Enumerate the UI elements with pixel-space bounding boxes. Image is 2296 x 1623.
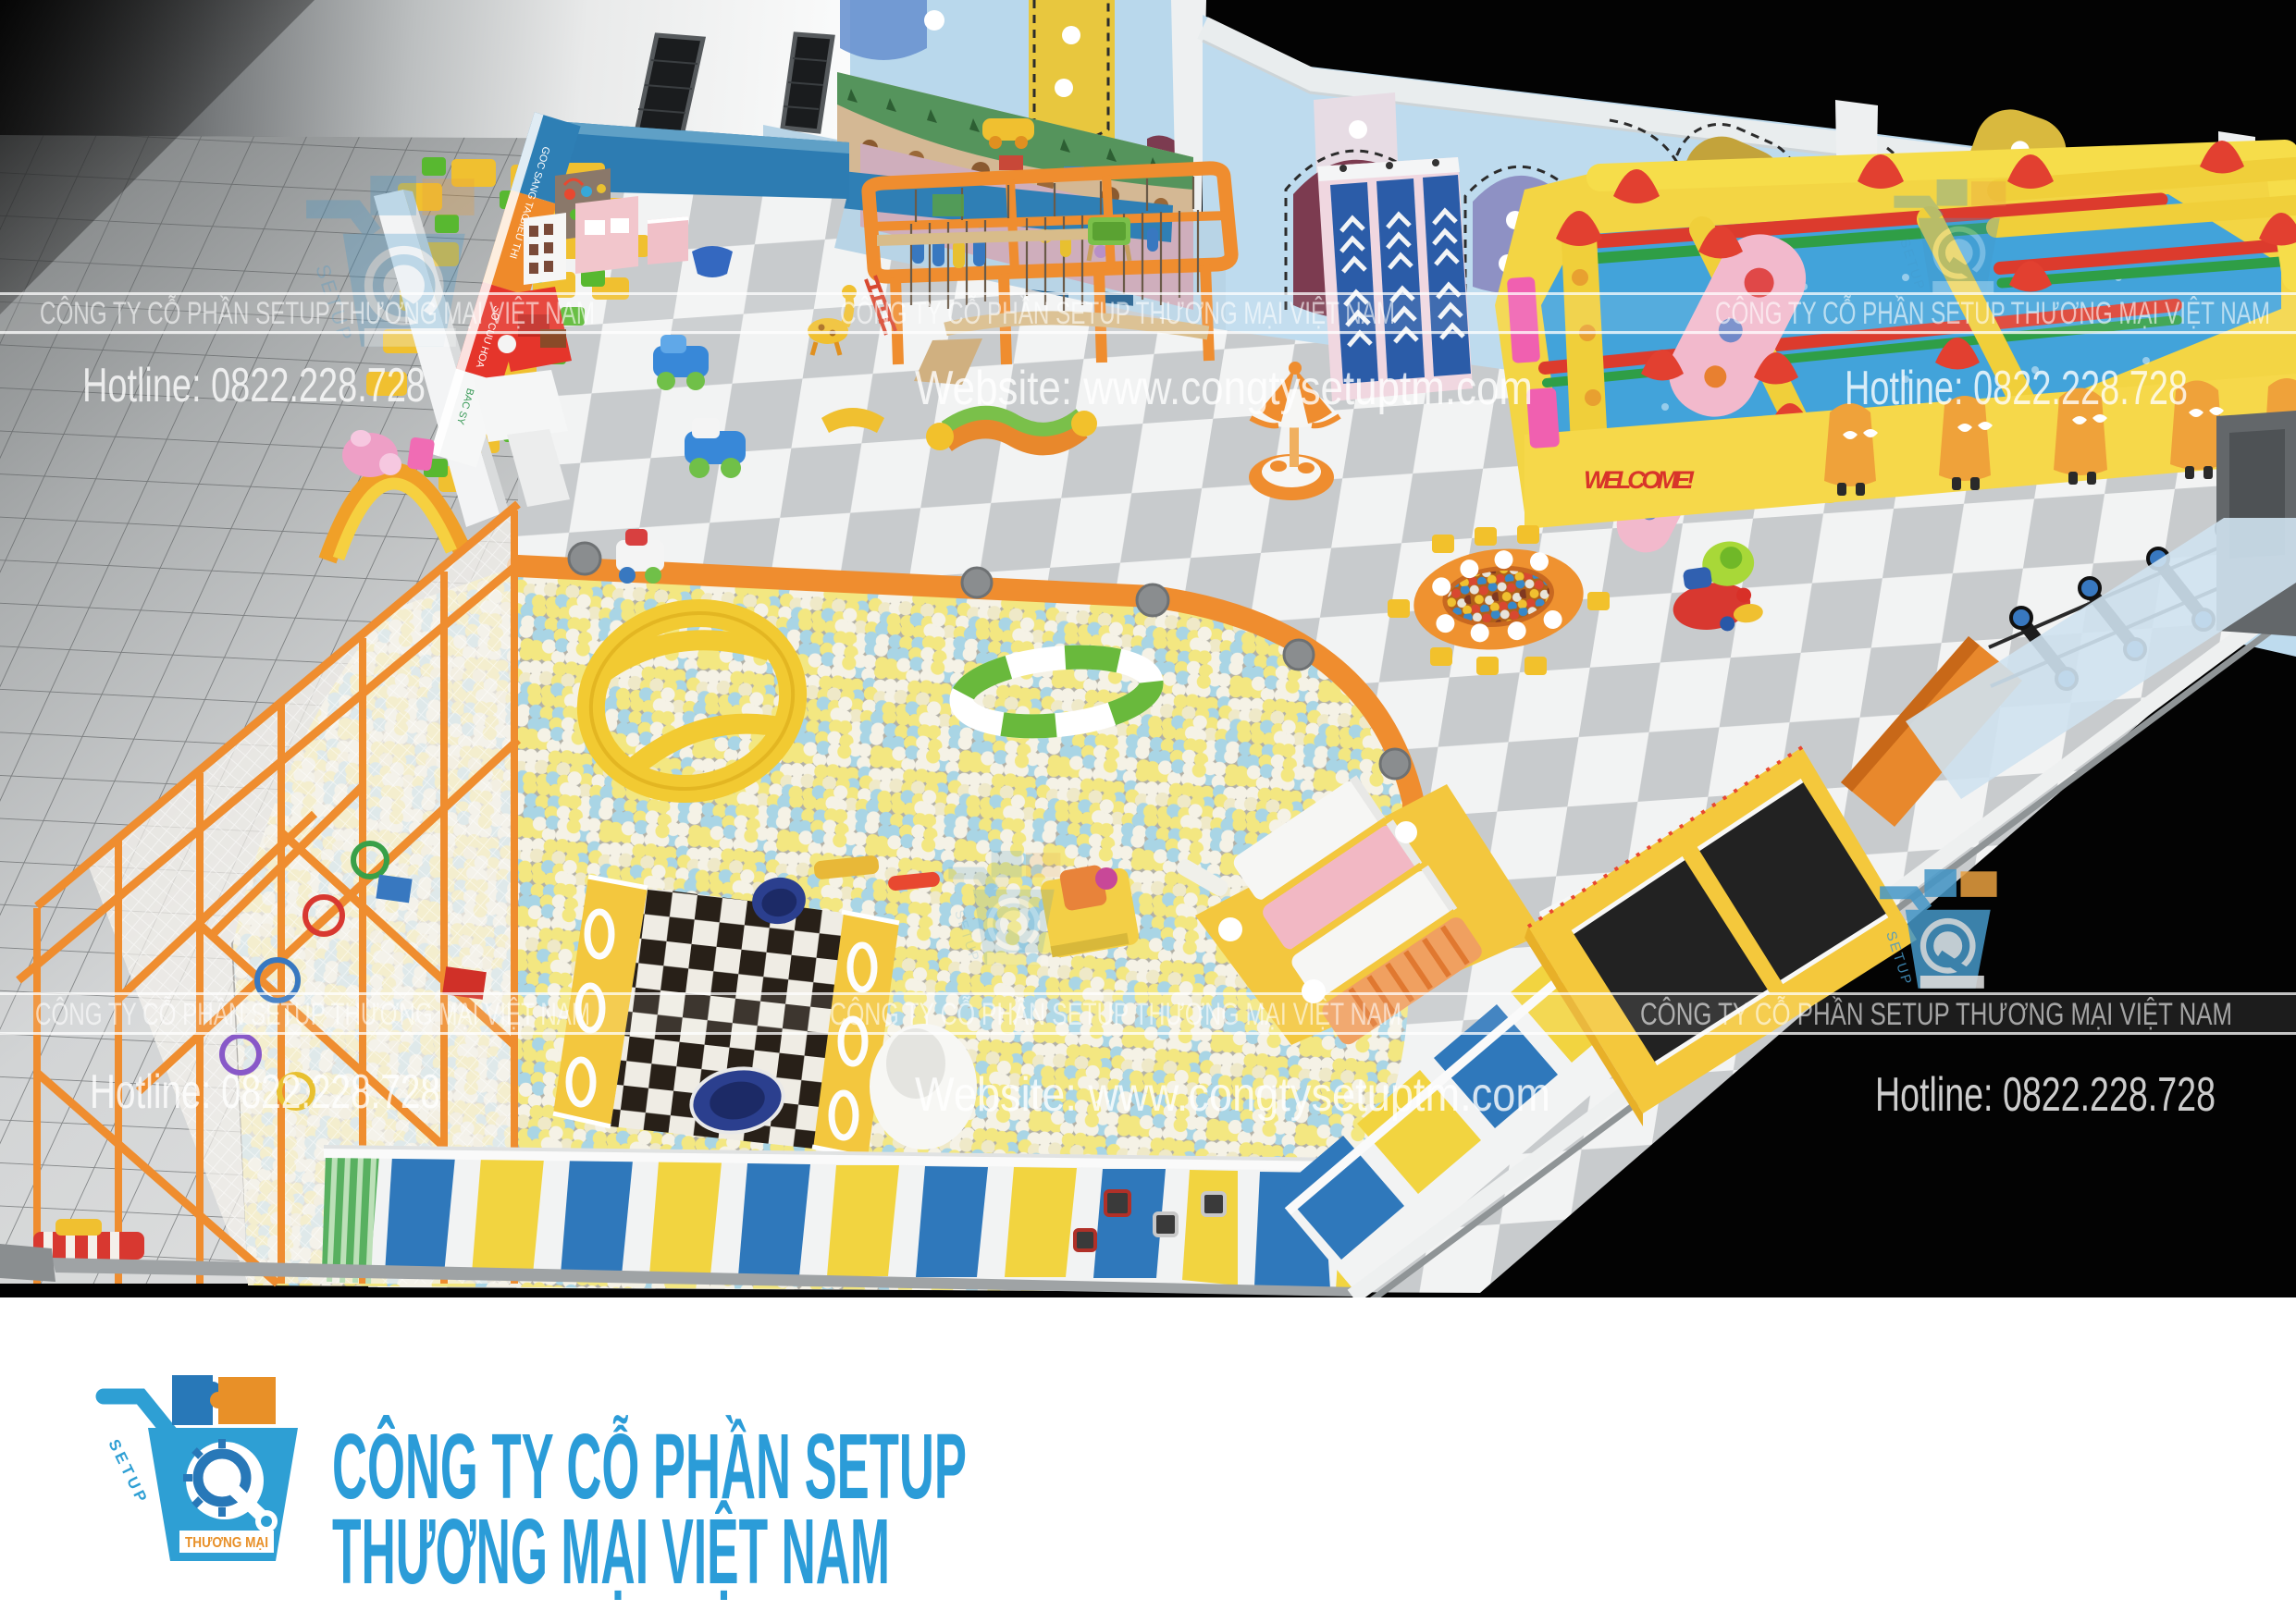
svg-text:Website: www.congtysetuptm.com: Website: www.congtysetuptm.com [915,1068,1550,1122]
svg-text:Website: www.congtysetuptm.com: Website: www.congtysetuptm.com [915,362,1533,415]
svg-text:Hotline: 0822.228.728: Hotline: 0822.228.728 [1875,1068,2216,1122]
svg-text:CÔNG TY CỖ PHẦN SETUP THƯƠNG M: CÔNG TY CỖ PHẦN SETUP THƯƠNG MẠI VIỆT NA… [35,997,590,1032]
svg-text:CÔNG TY CỖ PHẦN SETUP THƯƠNG M: CÔNG TY CỖ PHẦN SETUP THƯƠNG MẠI VIỆT NA… [1715,296,2270,331]
svg-text:CÔNG TY CỖ PHẦN SETUP THƯƠNG M: CÔNG TY CỖ PHẦN SETUP THƯƠNG MẠI VIỆT NA… [40,296,595,331]
svg-text:Hotline: 0822.228.728: Hotline: 0822.228.728 [1845,362,2188,415]
svg-text:Hotline: 0822.228.728: Hotline: 0822.228.728 [90,1065,440,1119]
svg-text:THƯƠNG MẠI: THƯƠNG MẠI [185,1535,268,1551]
svg-text:CÔNG TY CỖ PHẦN SETUP THƯƠNG M: CÔNG TY CỖ PHẦN SETUP THƯƠNG MẠI VIỆT NA… [830,997,1401,1032]
svg-text:CÔNG TY CỖ PHẦN SETUP THƯƠNG M: CÔNG TY CỖ PHẦN SETUP THƯƠNG MẠI VIỆT NA… [840,296,1395,331]
svg-text:WELCOME!: WELCOME! [1584,466,1695,494]
svg-text:CÔNG TY CỖ PHẦN SETUP THƯƠNG M: CÔNG TY CỖ PHẦN SETUP THƯƠNG MẠI VIỆT NA… [1640,997,2232,1032]
svg-text:Hotline: 0822.228.728: Hotline: 0822.228.728 [82,359,426,412]
svg-text:THƯƠNG MẠI VIỆT NAM: THƯƠNG MẠI VIỆT NAM [332,1500,890,1604]
